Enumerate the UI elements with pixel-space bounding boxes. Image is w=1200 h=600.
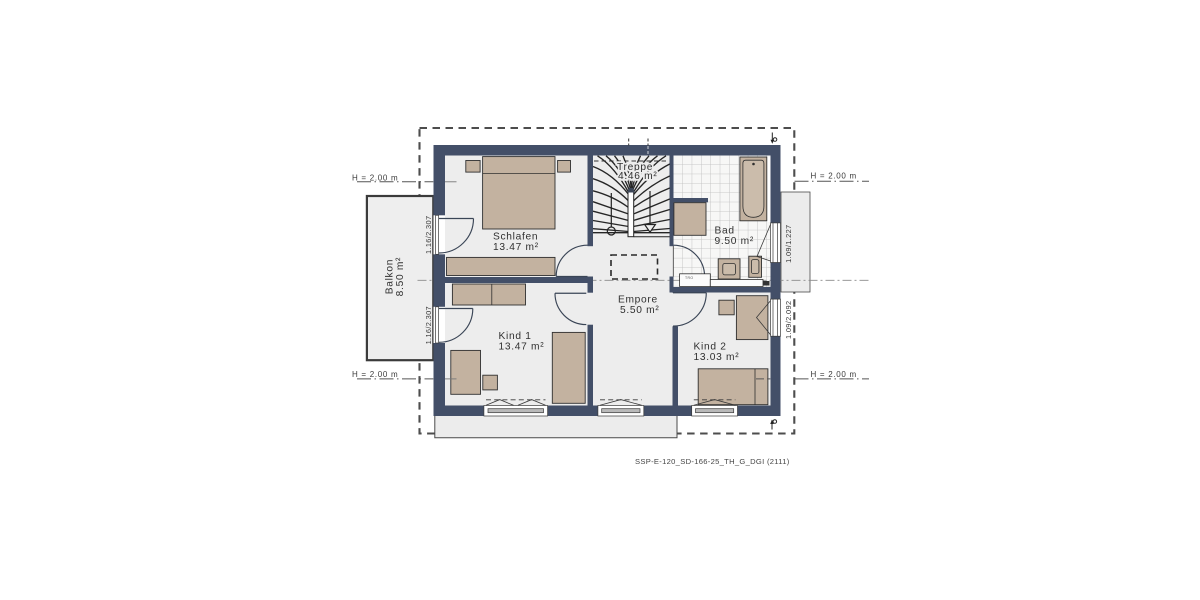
svg-text:H = 2.00 m: H = 2.00 m <box>811 171 857 180</box>
svg-text:Kind 1: Kind 1 <box>499 331 532 342</box>
svg-text:1.16/2.307: 1.16/2.307 <box>424 306 433 344</box>
svg-text:Kind 2: Kind 2 <box>694 342 727 353</box>
svg-text:SSP-E-120_SD-166-25_TH_G_DGI (: SSP-E-120_SD-166-25_TH_G_DGI (2111) <box>635 457 790 466</box>
svg-text:5.50 m²: 5.50 m² <box>620 305 659 316</box>
svg-text:9.50 m²: 9.50 m² <box>715 236 754 247</box>
svg-text:4.46 m²: 4.46 m² <box>618 171 657 182</box>
svg-text:Empore: Empore <box>618 295 658 306</box>
svg-text:1.16/2.307: 1.16/2.307 <box>424 216 433 254</box>
svg-text:13.47 m²: 13.47 m² <box>493 242 539 253</box>
svg-text:Balkon: Balkon <box>385 259 396 294</box>
svg-text:H = 2.00 m: H = 2.00 m <box>352 370 398 379</box>
svg-text:1.09/1.227: 1.09/1.227 <box>784 224 793 262</box>
svg-text:8.50 m²: 8.50 m² <box>395 257 406 296</box>
svg-text:Schlafen: Schlafen <box>493 232 538 243</box>
svg-text:1.09/2.092: 1.09/2.092 <box>784 301 793 339</box>
svg-text:H = 2.00 m: H = 2.00 m <box>811 370 857 379</box>
svg-text:13.47 m²: 13.47 m² <box>499 342 545 353</box>
svg-text:13.03 m²: 13.03 m² <box>694 352 740 363</box>
svg-text:TRO: TRO <box>685 276 693 280</box>
svg-text:H = 2.00 m: H = 2.00 m <box>352 174 398 183</box>
